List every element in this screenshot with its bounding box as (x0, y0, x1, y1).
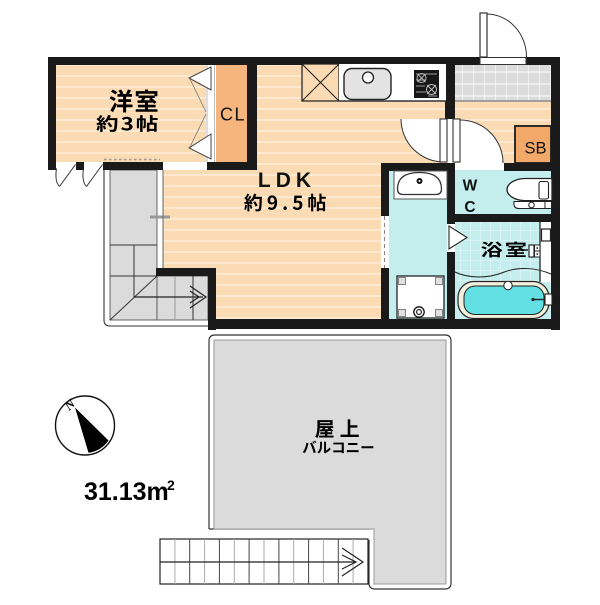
svg-text:LDK: LDK (258, 169, 316, 192)
svg-text:31.13m: 31.13m (84, 478, 169, 506)
svg-text:C: C (464, 199, 475, 216)
svg-text:W: W (463, 178, 478, 195)
svg-text:2: 2 (167, 477, 175, 493)
svg-text:SB: SB (524, 140, 546, 158)
svg-text:CL: CL (220, 105, 246, 125)
